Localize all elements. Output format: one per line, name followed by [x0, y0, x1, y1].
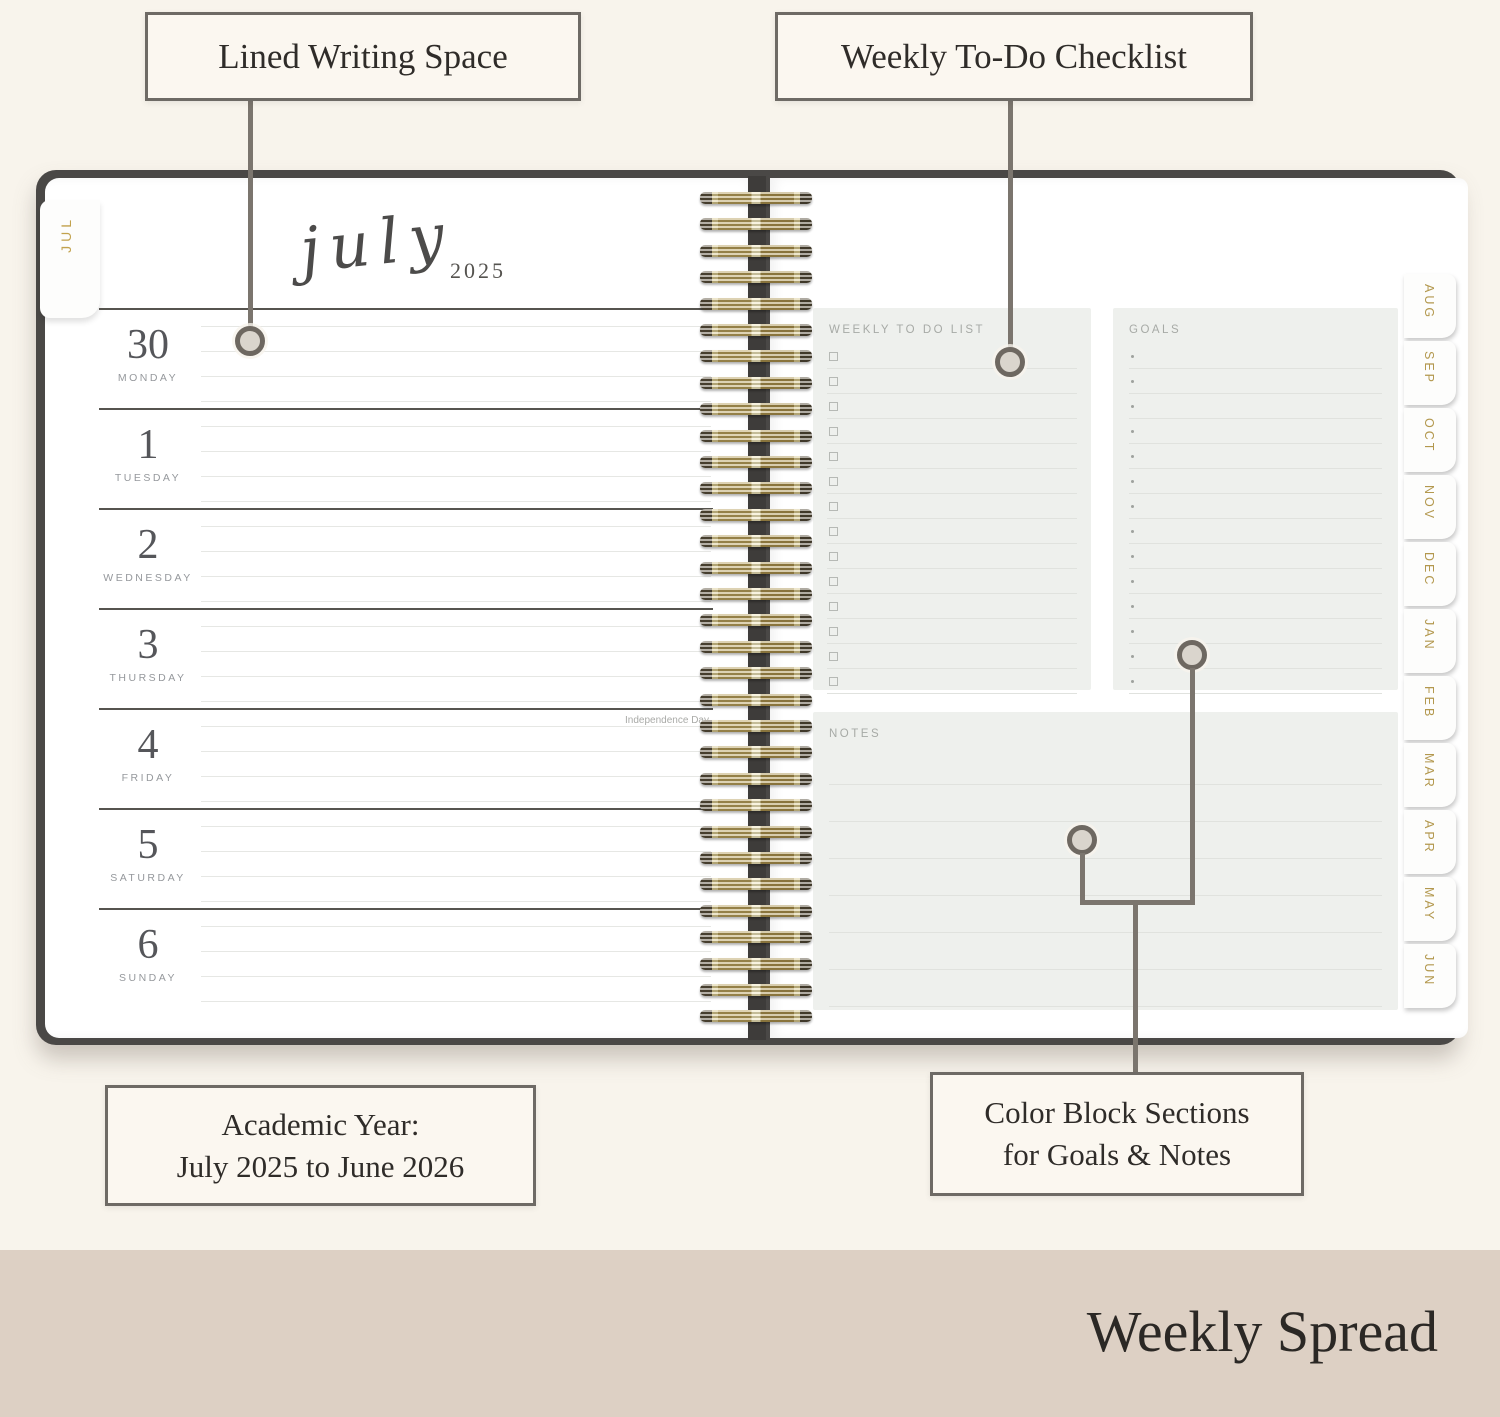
month-tab-label: NOV [1422, 485, 1436, 521]
month-tab-label: DEC [1422, 552, 1436, 587]
bullet-icon [1131, 630, 1134, 633]
notes-ruled-line [829, 748, 1382, 785]
day-row: 4FRIDAYIndependence Day [45, 708, 755, 808]
day-name: SATURDAY [97, 872, 199, 884]
day-label: 5SATURDAY [97, 824, 199, 884]
day-label: 4FRIDAY [97, 724, 199, 784]
notes-panel: NOTES [813, 712, 1398, 1010]
bullet-icon [1131, 580, 1134, 583]
callout-lined-writing-space: Lined Writing Space [145, 12, 581, 101]
goal-row [1129, 469, 1382, 494]
month-tabs: AUGSEPOCTNOVDECJANFEBMARAPRMAYJUN [1404, 274, 1456, 1011]
spiral-coil [700, 878, 812, 890]
connector-lined-writing [248, 95, 253, 328]
day-row: 30MONDAY [45, 308, 755, 408]
ruled-line [201, 976, 711, 977]
bullet-icon [1131, 505, 1134, 508]
todo-row [827, 619, 1077, 644]
checkbox-icon [829, 402, 838, 411]
ruled-line [201, 526, 711, 527]
pointer-dot-notes [1067, 825, 1097, 855]
checkbox-icon [829, 452, 838, 461]
spiral-coil [700, 509, 812, 521]
day-name: FRIDAY [97, 772, 199, 784]
ruled-line [201, 801, 711, 802]
notes-ruled-line [829, 859, 1382, 896]
goals-list [1113, 344, 1398, 694]
ruled-line [201, 701, 711, 702]
spiral-coil [700, 694, 812, 706]
checkbox-icon [829, 502, 838, 511]
day-name: THURSDAY [97, 672, 199, 684]
goals-panel-header: GOALS [1113, 308, 1398, 344]
ruled-line [201, 476, 711, 477]
writing-lines [201, 508, 711, 608]
spiral-coil [700, 456, 812, 468]
day-label: 30MONDAY [97, 324, 199, 384]
bullet-icon [1131, 655, 1134, 658]
day-label: 3THURSDAY [97, 624, 199, 684]
bullet-icon [1131, 480, 1134, 483]
month-tab-label: OCT [1422, 418, 1436, 453]
spiral-coil [700, 905, 812, 917]
spiral-coil [700, 958, 812, 970]
goal-row [1129, 669, 1382, 694]
ruled-line [201, 851, 711, 852]
spiral-coil [700, 667, 812, 679]
pointer-dot-lined-writing [235, 326, 265, 356]
writing-lines [201, 908, 711, 1008]
month-tab-label: MAR [1422, 753, 1436, 790]
bullet-icon [1131, 405, 1134, 408]
goal-row [1129, 594, 1382, 619]
ruled-line [201, 576, 711, 577]
spiral-coil [700, 826, 812, 838]
day-row: 5SATURDAY [45, 808, 755, 908]
notes-ruled-line [829, 822, 1382, 859]
month-tab-label: FEB [1422, 686, 1436, 719]
todo-row [827, 344, 1077, 369]
spiral-coil [700, 271, 812, 283]
month-tab-label: APR [1422, 820, 1436, 855]
goal-row [1129, 444, 1382, 469]
spiral-coil [700, 535, 812, 547]
bullet-icon [1131, 555, 1134, 558]
ruled-line [201, 601, 711, 602]
notes-lines [813, 748, 1398, 1007]
todo-row [827, 394, 1077, 419]
day-number: 4 [97, 724, 199, 766]
checkbox-icon [829, 427, 838, 436]
checkbox-icon [829, 677, 838, 686]
spiral-coil [700, 562, 812, 574]
bullet-icon [1131, 355, 1134, 358]
spiral-coil [700, 984, 812, 996]
month-tab-dec: DEC [1404, 542, 1456, 606]
todo-row [827, 469, 1077, 494]
ruled-line [201, 826, 711, 827]
day-number: 2 [97, 524, 199, 566]
checkbox-icon [829, 377, 838, 386]
todo-row [827, 519, 1077, 544]
tab-jul-label: JUL [58, 216, 74, 253]
notes-ruled-line [829, 970, 1382, 1007]
checkbox-icon [829, 352, 838, 361]
bullet-icon [1131, 530, 1134, 533]
ruled-line [201, 951, 711, 952]
day-name: SUNDAY [97, 972, 199, 984]
ruled-line [201, 451, 711, 452]
callout-weekly-todo-checklist: Weekly To-Do Checklist [775, 12, 1253, 101]
todo-row [827, 494, 1077, 519]
goal-row [1129, 369, 1382, 394]
goal-row [1129, 519, 1382, 544]
spiral-coil [700, 641, 812, 653]
connector-weekly-todo [1008, 95, 1013, 348]
day-name: MONDAY [97, 372, 199, 384]
checkbox-icon [829, 477, 838, 486]
ruled-line [201, 926, 711, 927]
month-tab-label: JAN [1422, 619, 1436, 652]
spiral-coil [700, 350, 812, 362]
pointer-dot-weekly-todo [995, 347, 1025, 377]
spiral-coil [700, 588, 812, 600]
bullet-icon [1131, 680, 1134, 683]
spiral-coil [700, 1010, 812, 1022]
goal-row [1129, 494, 1382, 519]
month-header: july2025 [240, 206, 570, 302]
writing-lines [201, 408, 711, 508]
day-row: 6SUNDAY [45, 908, 755, 1008]
connector-color-block [1133, 905, 1138, 1072]
todo-row [827, 419, 1077, 444]
todo-row [827, 594, 1077, 619]
spiral-coil [700, 324, 812, 336]
todo-row [827, 369, 1077, 394]
bullet-icon [1131, 455, 1134, 458]
goal-row [1129, 644, 1382, 669]
spiral-coil [700, 377, 812, 389]
goal-row [1129, 419, 1382, 444]
ruled-line [201, 901, 711, 902]
ruled-line [201, 876, 711, 877]
day-number: 5 [97, 824, 199, 866]
todo-row [827, 544, 1077, 569]
goal-row [1129, 394, 1382, 419]
spiral-coil [700, 773, 812, 785]
spiral-coil [700, 799, 812, 811]
ruled-line [201, 726, 711, 727]
spiral-coil [700, 298, 812, 310]
ruled-line [201, 376, 711, 377]
month-tab-oct: OCT [1404, 408, 1456, 472]
month-tab-label: SEP [1422, 351, 1436, 385]
spiral-coil [700, 403, 812, 415]
ruled-line [201, 551, 711, 552]
month-tab-mar: MAR [1404, 743, 1456, 807]
spiral-coil [700, 430, 812, 442]
writing-lines [201, 808, 711, 908]
month-tab-nov: NOV [1404, 475, 1456, 539]
callout-academic-year: Academic Year: July 2025 to June 2026 [105, 1085, 536, 1206]
writing-lines [201, 608, 711, 708]
ruled-line [201, 426, 711, 427]
month-tab-sep: SEP [1404, 341, 1456, 405]
day-row: 3THURSDAY [45, 608, 755, 708]
month-tab-label: AUG [1422, 284, 1436, 320]
goal-row [1129, 569, 1382, 594]
day-row: 2WEDNESDAY [45, 508, 755, 608]
todo-row [827, 644, 1077, 669]
notes-ruled-line [829, 785, 1382, 822]
notes-ruled-line [829, 933, 1382, 970]
day-number: 30 [97, 324, 199, 366]
todo-checklist [813, 344, 1091, 694]
month-tab-may: MAY [1404, 877, 1456, 941]
checkbox-icon [829, 652, 838, 661]
spiral-coil [700, 192, 812, 204]
notes-panel-header: NOTES [813, 712, 1398, 748]
month-tab-jun: JUN [1404, 944, 1456, 1008]
product-image: life- NOTE IT.® PLANNER + NOTES Weekly S… [0, 0, 1500, 1417]
checkbox-icon [829, 527, 838, 536]
ruled-line [201, 626, 711, 627]
tab-jul: JUL [40, 200, 100, 318]
connector-notes [1080, 853, 1085, 905]
ruled-line [201, 501, 711, 502]
ruled-line [201, 676, 711, 677]
spiral-coil [700, 218, 812, 230]
ruled-line [201, 351, 711, 352]
month-tab-aug: AUG [1404, 274, 1456, 338]
month-tab-jan: JAN [1404, 609, 1456, 673]
image-title: Weekly Spread [1087, 1298, 1438, 1365]
todo-row [827, 569, 1077, 594]
ruled-line [201, 1001, 711, 1002]
ruled-line [201, 651, 711, 652]
bullet-icon [1131, 430, 1134, 433]
day-label: 1TUESDAY [97, 424, 199, 484]
bullet-icon [1131, 380, 1134, 383]
month-name: july [297, 198, 458, 287]
spiral-coil [700, 931, 812, 943]
day-name: WEDNESDAY [97, 572, 199, 584]
spiral-coil [700, 614, 812, 626]
writing-lines [201, 308, 711, 408]
bullet-icon [1131, 605, 1134, 608]
left-page: JUL july2025 30MONDAY1TUESDAY2WEDNESDAY3… [45, 178, 755, 1038]
month-tab-apr: APR [1404, 810, 1456, 874]
month-tab-label: MAY [1422, 887, 1436, 922]
checkbox-icon [829, 552, 838, 561]
checkbox-icon [829, 577, 838, 586]
goal-row [1129, 619, 1382, 644]
goals-panel: GOALS [1113, 308, 1398, 690]
todo-panel-header: WEEKLY TO DO LIST [813, 308, 1091, 344]
day-name: TUESDAY [97, 472, 199, 484]
ruled-line [201, 776, 711, 777]
spiral-coil [700, 482, 812, 494]
day-label: 2WEDNESDAY [97, 524, 199, 584]
day-number: 1 [97, 424, 199, 466]
month-tab-feb: FEB [1404, 676, 1456, 740]
connector-goals [1190, 668, 1195, 905]
spiral-coil [700, 720, 812, 732]
right-page: WEEKLY TO DO LIST GOALS NOTES [770, 178, 1468, 1038]
spiral-coil [700, 746, 812, 758]
holiday-label: Independence Day [625, 715, 709, 726]
pointer-dot-goals [1177, 640, 1207, 670]
checkbox-icon [829, 602, 838, 611]
todo-row [827, 444, 1077, 469]
ruled-line [201, 751, 711, 752]
todo-panel: WEEKLY TO DO LIST [813, 308, 1091, 690]
ruled-line [201, 401, 711, 402]
day-label: 6SUNDAY [97, 924, 199, 984]
week-day-rows: 30MONDAY1TUESDAY2WEDNESDAY3THURSDAY4FRID… [45, 308, 755, 1008]
todo-row [827, 669, 1077, 694]
spiral-binding [700, 192, 812, 1042]
day-number: 6 [97, 924, 199, 966]
day-row: 1TUESDAY [45, 408, 755, 508]
month-tab-label: JUN [1422, 954, 1436, 987]
spiral-coil [700, 852, 812, 864]
month-year: 2025 [450, 258, 506, 283]
goal-row [1129, 344, 1382, 369]
day-number: 3 [97, 624, 199, 666]
ruled-line [201, 326, 711, 327]
goal-row [1129, 544, 1382, 569]
spiral-coil [700, 245, 812, 257]
callout-color-block-sections: Color Block Sections for Goals & Notes [930, 1072, 1304, 1196]
checkbox-icon [829, 627, 838, 636]
